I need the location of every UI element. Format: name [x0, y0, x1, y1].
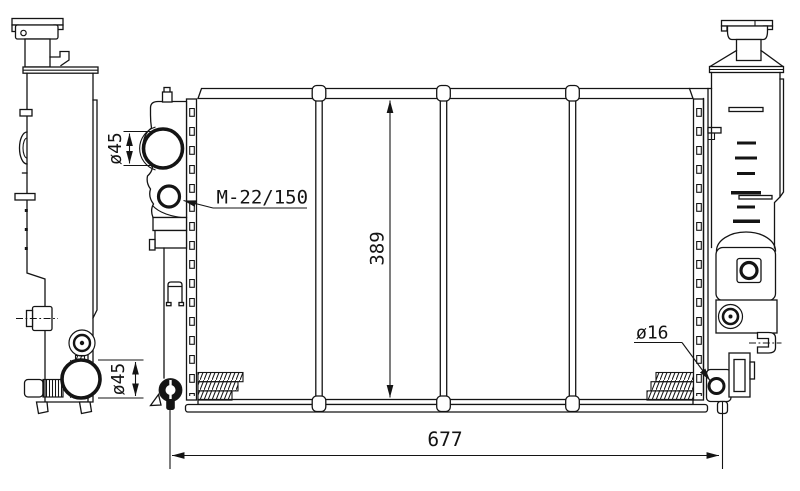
level-mark — [735, 157, 757, 160]
outlet-hose-port-side — [62, 360, 100, 398]
grommet-center — [729, 315, 733, 319]
side-dot-2 — [25, 228, 28, 231]
side-stud — [25, 380, 44, 398]
filler-neck — [25, 39, 50, 67]
drain-boss-foot — [167, 303, 172, 306]
front-view — [140, 86, 731, 414]
core-divider-2 — [437, 86, 451, 412]
divider-column — [316, 99, 322, 400]
filler-neck — [737, 40, 762, 61]
dim-overall-width: 677 — [170, 409, 723, 469]
housing-grommet — [719, 305, 743, 329]
bracket-inner — [734, 360, 745, 392]
core-divider-3 — [566, 86, 580, 412]
inlet-diameter-label: ø45 — [105, 132, 126, 165]
filler-cap-side — [12, 19, 69, 68]
crimp-ladder-right — [694, 99, 704, 400]
crimp-ladder-left — [187, 99, 197, 400]
label-filler-thread: M-22/150 — [184, 187, 309, 209]
foot-tab-right — [80, 402, 92, 414]
core-height-label: 389 — [367, 231, 389, 265]
front-left-tank — [140, 88, 187, 411]
cap-body — [728, 26, 768, 40]
ladder-rungs — [695, 104, 703, 396]
neck-bracket — [50, 52, 69, 66]
grommet-center — [80, 341, 84, 345]
level-mark — [731, 191, 761, 195]
fin-block-right — [647, 373, 694, 401]
mount-wing — [151, 395, 162, 406]
neck-strut-left — [710, 51, 737, 67]
filler-port-ring — [159, 186, 180, 207]
drain-boss — [168, 282, 182, 303]
hose-ring — [62, 360, 100, 398]
divider-column — [440, 99, 446, 400]
tank-top-tab — [163, 92, 173, 102]
drain-port-ring — [709, 379, 724, 394]
drain-diameter-label: ø16 — [636, 323, 669, 344]
divider-cap-bottom — [437, 396, 451, 412]
neck-strut-right — [761, 51, 783, 67]
inlet-pipe-ring — [144, 129, 183, 168]
tank-side-nub — [150, 240, 156, 251]
cap-vent-hole — [21, 30, 26, 35]
level-mark — [733, 220, 760, 224]
fin-row — [651, 382, 694, 391]
fin-row — [647, 391, 694, 400]
radiator-technical-drawing: 389 ø45 ø45 677 M-22/150 ø16 — [0, 0, 800, 491]
right-side-view-expansion-tank — [710, 21, 784, 398]
crimp-stripes — [43, 380, 63, 398]
tank-right-edge — [775, 73, 781, 249]
cap-plate — [722, 21, 773, 27]
side-dot-3 — [25, 247, 28, 250]
mounting-clamp — [16, 307, 58, 331]
fin-row — [198, 391, 232, 400]
fin-row — [198, 373, 243, 382]
side-notch — [20, 110, 32, 117]
overall-width-label: 677 — [427, 428, 462, 451]
foot-tab-left — [37, 402, 49, 414]
drain-port — [707, 370, 732, 414]
bottom-left-mount — [151, 379, 182, 410]
outlet-diameter-label: ø45 — [108, 363, 129, 396]
drain-plug-ring — [741, 263, 757, 279]
divider-cap-top — [566, 86, 580, 102]
divider-cap-top — [437, 86, 451, 102]
tank-step-block-2 — [155, 231, 187, 249]
mount-stem — [166, 399, 175, 410]
level-mark — [737, 142, 756, 145]
side-bar — [15, 194, 35, 201]
divider-column — [569, 99, 575, 400]
tank-step-block-1 — [153, 218, 187, 231]
cap-plate — [12, 19, 63, 26]
cap-hook-left — [722, 26, 728, 31]
level-mark — [729, 108, 763, 112]
fin-row — [198, 382, 238, 391]
side-grommet — [69, 330, 95, 356]
drawing-canvas: 389 ø45 ø45 677 M-22/150 ø16 — [0, 0, 800, 491]
bracket-nub — [750, 362, 755, 379]
fin-row — [656, 373, 694, 382]
ladder-rungs — [188, 104, 196, 396]
divider-cap-bottom — [566, 396, 580, 412]
level-mark — [739, 196, 772, 200]
divider-cap-top — [312, 86, 326, 102]
filler-thread-label: M-22/150 — [217, 187, 309, 209]
side-dot-1 — [25, 209, 28, 212]
level-mark — [737, 172, 755, 175]
strip-bracket — [708, 128, 721, 134]
dim-core-height: 389 — [367, 101, 391, 398]
core-divider-1 — [312, 86, 326, 412]
dim-outlet-diameter: ø45 — [98, 360, 144, 398]
fin-block-left — [198, 373, 243, 401]
level-mark — [737, 206, 755, 209]
coolant-level-marks — [729, 108, 772, 224]
lower-bracket — [729, 353, 755, 397]
filler-cap-right — [710, 21, 783, 67]
divider-cap-bottom — [312, 396, 326, 412]
left-side-view — [12, 19, 100, 414]
drain-boss-foot — [179, 303, 184, 306]
